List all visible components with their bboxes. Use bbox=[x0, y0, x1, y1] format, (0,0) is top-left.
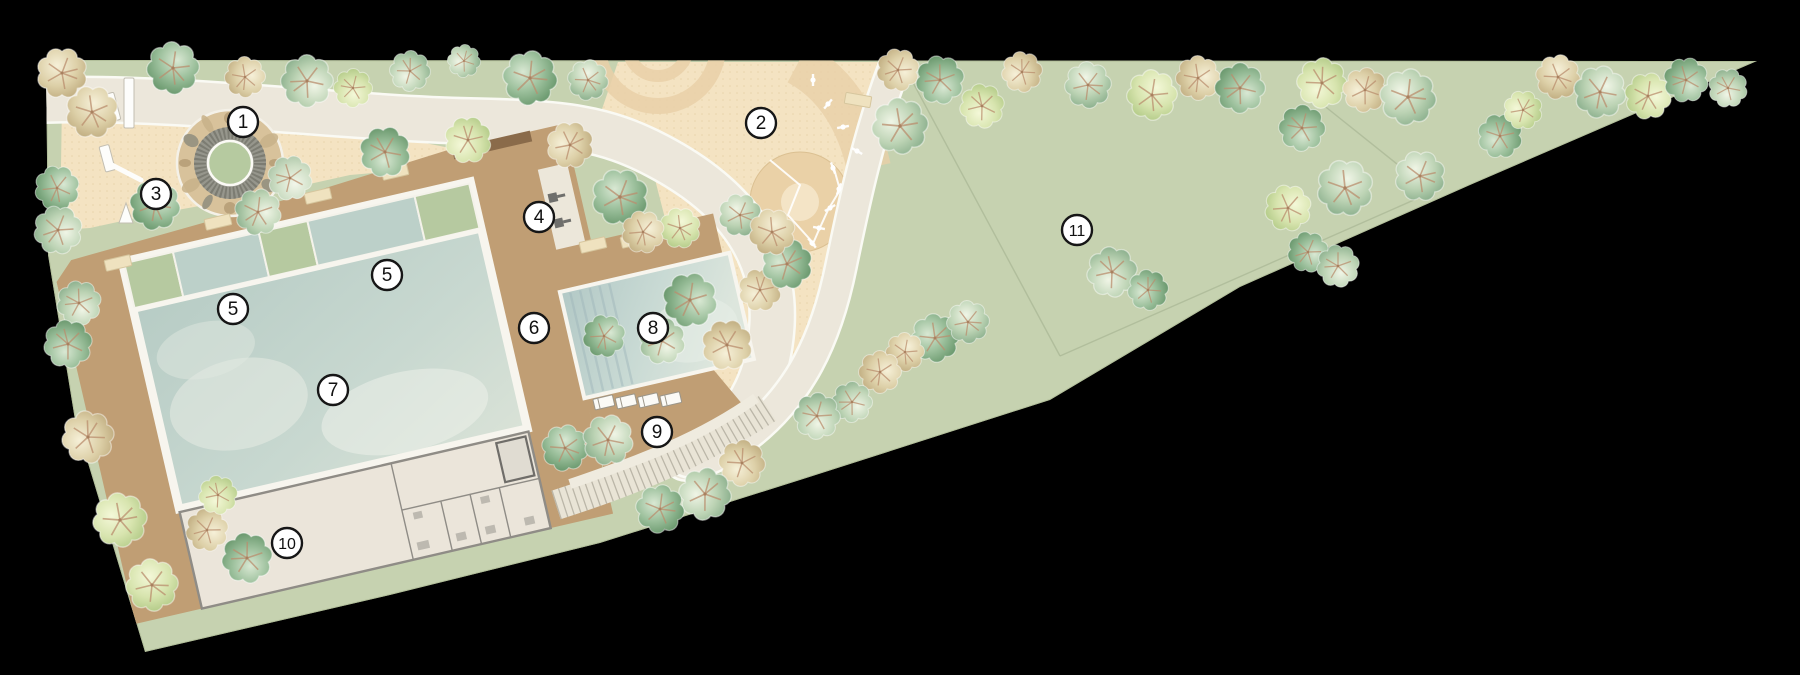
marker-4: 4 bbox=[524, 202, 554, 232]
marker-label: 5 bbox=[382, 265, 393, 286]
marker-label: 10 bbox=[278, 536, 296, 553]
marker-8: 8 bbox=[638, 313, 668, 343]
marker-11: 11 bbox=[1062, 215, 1092, 245]
marker-9: 9 bbox=[642, 417, 672, 447]
marker-label: 11 bbox=[1069, 223, 1086, 240]
marker-label: 9 bbox=[652, 422, 663, 443]
marker-7: 7 bbox=[318, 375, 348, 405]
site-plan-canvas: 12345567891011 bbox=[0, 0, 1800, 675]
marker-3: 3 bbox=[141, 179, 171, 209]
marker-5: 5 bbox=[218, 294, 248, 324]
marker-label: 4 bbox=[534, 207, 545, 228]
marker-label: 2 bbox=[756, 113, 767, 134]
site-plan: 12345567891011 bbox=[0, 0, 1800, 675]
marker-label: 7 bbox=[328, 380, 339, 401]
marker-2: 2 bbox=[746, 108, 776, 138]
pebble bbox=[224, 202, 236, 214]
pebble bbox=[179, 159, 191, 167]
marker-label: 6 bbox=[529, 318, 540, 339]
marker-6: 6 bbox=[519, 313, 549, 343]
marker-10: 10 bbox=[272, 528, 302, 558]
marker-1: 1 bbox=[228, 107, 258, 137]
marker-label: 5 bbox=[228, 299, 239, 320]
marker-label: 8 bbox=[648, 318, 659, 339]
marker-5: 5 bbox=[372, 260, 402, 290]
play-equipment-icon bbox=[124, 78, 134, 128]
marker-label: 1 bbox=[238, 112, 249, 133]
marker-label: 3 bbox=[151, 184, 162, 205]
